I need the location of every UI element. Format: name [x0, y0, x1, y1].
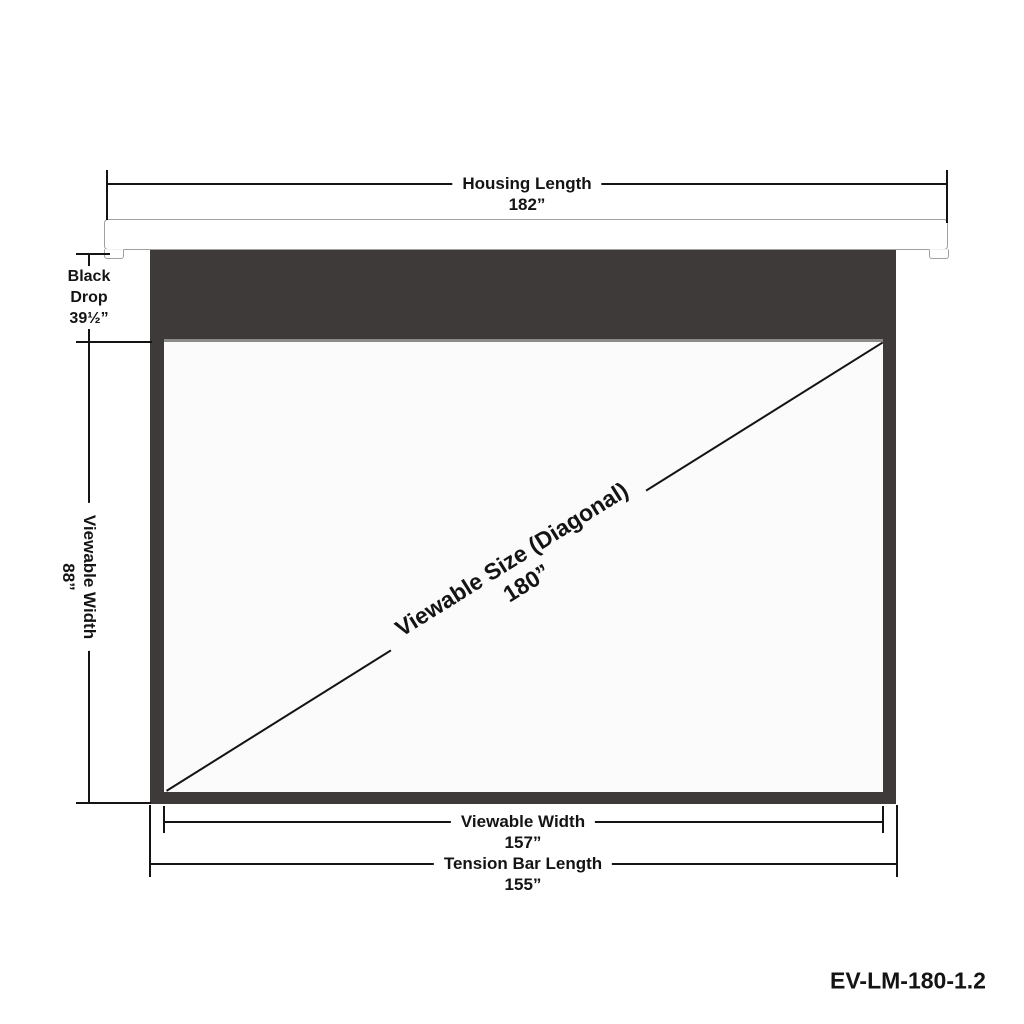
viewable-width-tick-left — [163, 806, 165, 833]
housing-length-tick-left — [106, 170, 108, 220]
black-drop-tick-bottom — [76, 341, 152, 343]
tension-bar-value: 155” — [444, 874, 602, 895]
viewable-width-value: 157” — [461, 832, 585, 853]
black-drop-value: 39½” — [68, 308, 111, 329]
viewable-height-label: Viewable Width 88” — [54, 503, 104, 651]
product-code: EV-LM-180-1.2 — [830, 968, 986, 995]
housing-length-value: 182” — [462, 194, 591, 215]
viewable-width-label: Viewable Width 157” — [451, 811, 595, 853]
viewable-height-tick-bottom — [76, 802, 151, 804]
viewable-height-label-text: Viewable Width — [79, 515, 100, 639]
housing-length-label-text: Housing Length — [462, 173, 591, 194]
tension-bar-label: Tension Bar Length 155” — [434, 853, 612, 895]
projector-screen-diagram: Housing Length 182” Viewable Size (Diago… — [0, 0, 1024, 1024]
housing-length-label: Housing Length 182” — [452, 173, 601, 215]
viewable-width-label-text: Viewable Width — [461, 811, 585, 832]
housing-bar — [104, 219, 948, 250]
viewable-width-tick-right — [882, 806, 884, 833]
black-drop-line2: Drop — [68, 287, 111, 308]
tension-bar-label-text: Tension Bar Length — [444, 853, 602, 874]
tension-bar-tick-left — [149, 805, 151, 877]
housing-endcap-right — [929, 249, 949, 259]
black-drop-line1: Black — [68, 266, 111, 287]
tension-bar-tick-right — [896, 805, 898, 877]
black-drop-label: Black Drop 39½” — [65, 266, 114, 329]
housing-length-tick-right — [946, 170, 948, 223]
black-drop-tick-top — [76, 253, 110, 255]
viewable-height-value: 88” — [58, 515, 79, 639]
